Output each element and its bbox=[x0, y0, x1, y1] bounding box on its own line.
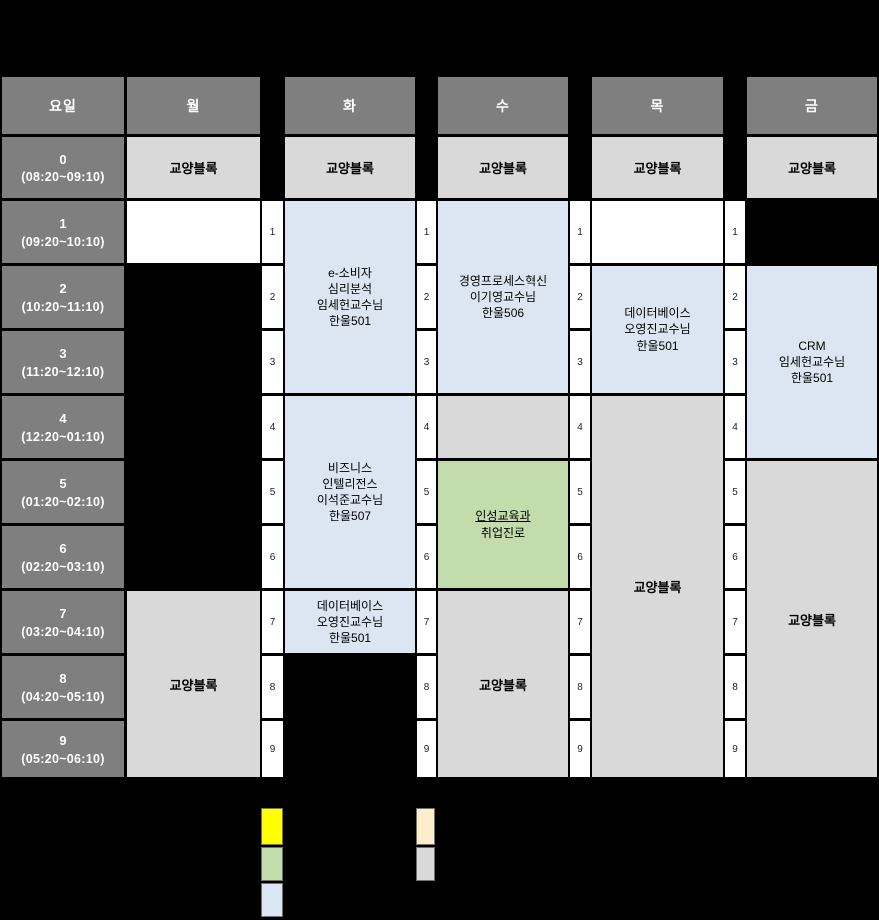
period-number: 3 bbox=[262, 331, 283, 393]
time-slot-range: (11:20~12:10) bbox=[22, 364, 105, 380]
liberal-block-cell-wed-p7-9: 교양블록 bbox=[438, 591, 568, 777]
legend-swatch-cream bbox=[416, 808, 435, 845]
class-cell-tue-p7: 데이터베이스 오영진교수님 한울501 bbox=[285, 591, 415, 653]
period-number: 2 bbox=[417, 266, 436, 328]
time-slot-0: 0 (08:20~09:10) bbox=[2, 137, 124, 198]
class-title: 데이터베이스 오영진교수님 한울501 bbox=[624, 305, 690, 354]
period-number: 7 bbox=[417, 591, 436, 653]
liberal-block-cell-wed-p0: 교양블록 bbox=[438, 137, 568, 198]
period-number-column-3: 123456789 bbox=[570, 0, 590, 920]
time-slot-period: 9 bbox=[59, 731, 66, 751]
time-slot-range: (01:20~02:10) bbox=[21, 494, 104, 510]
time-slot-1: 1 (09:20~10:10) bbox=[2, 201, 124, 263]
time-slot-5: 5 (01:20~02:10) bbox=[2, 461, 124, 523]
period-number: 5 bbox=[725, 461, 745, 523]
liberal-block-cell-thu-p4-9: 교양블록 bbox=[592, 396, 723, 777]
time-slot-range: (02:20~03:10) bbox=[21, 559, 104, 575]
period-number-column-4: 123456789 bbox=[725, 0, 745, 920]
period-number: 9 bbox=[570, 721, 590, 777]
class-subtitle: 취업진로 bbox=[481, 525, 525, 541]
period-number: 2 bbox=[725, 266, 745, 328]
time-slot-period: 1 bbox=[59, 214, 66, 234]
period-number: 8 bbox=[417, 656, 436, 718]
legend-swatch-light-blue bbox=[261, 883, 283, 917]
time-slot-range: (04:20~05:10) bbox=[21, 689, 104, 705]
period-number: 1 bbox=[570, 201, 590, 263]
time-slot-range: (08:20~09:10) bbox=[21, 169, 104, 185]
time-slot-6: 6 (02:20~03:10) bbox=[2, 526, 124, 588]
class-title: 데이터베이스 오영진교수님 한울501 bbox=[317, 598, 383, 647]
class-title: 인성교육과 bbox=[475, 508, 530, 524]
period-number: 2 bbox=[262, 266, 283, 328]
legend-swatch-gray bbox=[416, 847, 435, 881]
empty-cell-mon-p1 bbox=[127, 201, 260, 263]
time-slot-range: (09:20~10:10) bbox=[21, 234, 104, 250]
period-number: 9 bbox=[262, 721, 283, 777]
day-header-tue: 화 bbox=[285, 77, 415, 134]
period-number: 4 bbox=[725, 396, 745, 458]
period-number: 3 bbox=[417, 331, 436, 393]
class-cell-tue-p4-6: 비즈니스 인텔리전스 이석준교수님 한울507 bbox=[285, 396, 415, 588]
day-header-wed: 수 bbox=[438, 77, 568, 134]
day-header-thu: 목 bbox=[592, 77, 723, 134]
period-number: 4 bbox=[262, 396, 283, 458]
time-slot-period: 4 bbox=[59, 409, 66, 429]
period-number: 2 bbox=[570, 266, 590, 328]
liberal-block-cell-thu-p0: 교양블록 bbox=[592, 137, 723, 198]
liberal-block-cell-mon-p0: 교양블록 bbox=[127, 137, 260, 198]
class-cell-wed-p1-3: 경영프로세스혁신 이기영교수님 한울506 bbox=[438, 201, 568, 393]
period-number: 9 bbox=[417, 721, 436, 777]
time-slot-range: (03:20~04:10) bbox=[21, 624, 104, 640]
period-number: 5 bbox=[570, 461, 590, 523]
day-header-mon: 월 bbox=[127, 77, 260, 134]
period-number: 4 bbox=[570, 396, 590, 458]
time-slot-range: (10:20~11:10) bbox=[22, 299, 105, 315]
time-slot-7: 7 (03:20~04:10) bbox=[2, 591, 124, 653]
period-number: 8 bbox=[725, 656, 745, 718]
period-number: 1 bbox=[262, 201, 283, 263]
time-slot-period: 5 bbox=[59, 474, 66, 494]
time-slot-2: 2 (10:20~11:10) bbox=[2, 266, 124, 328]
period-number: 6 bbox=[262, 526, 283, 588]
timetable: 요일 월 화 수 목 금 0 (08:20~09:10) 1 (09:20~10… bbox=[0, 0, 879, 920]
time-slot-3: 3 (11:20~12:10) bbox=[2, 331, 124, 393]
time-slot-period: 7 bbox=[59, 604, 66, 624]
liberal-block-cell-fri-p0: 교양블록 bbox=[747, 137, 877, 198]
period-number: 7 bbox=[725, 591, 745, 653]
class-title: 비즈니스 인텔리전스 이석준교수님 한울507 bbox=[317, 460, 383, 525]
period-number: 7 bbox=[570, 591, 590, 653]
time-slot-range: (05:20~06:10) bbox=[21, 751, 104, 767]
period-number: 3 bbox=[725, 331, 745, 393]
liberal-block-cell-tue-p0: 교양블록 bbox=[285, 137, 415, 198]
period-number: 5 bbox=[417, 461, 436, 523]
period-number-column-1: 123456789 bbox=[262, 0, 283, 920]
liberal-block-cell-fri-p5-9: 교양블록 bbox=[747, 461, 877, 777]
period-number: 9 bbox=[725, 721, 745, 777]
period-number: 5 bbox=[262, 461, 283, 523]
class-cell-thu-p2-3: 데이터베이스 오영진교수님 한울501 bbox=[592, 266, 723, 393]
liberal-block-cell-mon-p7-9: 교양블록 bbox=[127, 591, 260, 777]
class-cell-fri-p2-4: CRM 임세헌교수님 한울501 bbox=[747, 266, 877, 458]
time-slot-9: 9 (05:20~06:10) bbox=[2, 721, 124, 777]
corner-header: 요일 bbox=[2, 77, 124, 134]
class-title: e-소비자 심리분석 임세헌교수님 한울501 bbox=[317, 265, 383, 330]
class-title: CRM 임세헌교수님 한울501 bbox=[779, 338, 845, 387]
period-number: 3 bbox=[570, 331, 590, 393]
period-number: 8 bbox=[262, 656, 283, 718]
time-slot-period: 3 bbox=[59, 344, 66, 364]
period-number: 6 bbox=[570, 526, 590, 588]
time-slot-8: 8 (04:20~05:10) bbox=[2, 656, 124, 718]
period-number: 1 bbox=[725, 201, 745, 263]
class-cell-tue-p1-3: e-소비자 심리분석 임세헌교수님 한울501 bbox=[285, 201, 415, 393]
period-number-column-2: 123456789 bbox=[417, 0, 436, 920]
time-slot-period: 6 bbox=[59, 539, 66, 559]
period-number: 7 bbox=[262, 591, 283, 653]
empty-cell-wed-p4 bbox=[438, 396, 568, 458]
empty-cell-thu-p1 bbox=[592, 201, 723, 263]
period-number: 6 bbox=[725, 526, 745, 588]
time-slot-period: 0 bbox=[59, 150, 66, 170]
class-cell-wed-p5-6: 인성교육과 취업진로 bbox=[438, 461, 568, 588]
period-number: 8 bbox=[570, 656, 590, 718]
period-number: 6 bbox=[417, 526, 436, 588]
class-title: 경영프로세스혁신 이기영교수님 한울506 bbox=[459, 273, 547, 322]
period-number: 1 bbox=[417, 201, 436, 263]
time-slot-period: 2 bbox=[59, 279, 66, 299]
time-slot-4: 4 (12:20~01:10) bbox=[2, 396, 124, 458]
legend-swatch-green bbox=[261, 847, 283, 881]
time-slot-range: (12:20~01:10) bbox=[21, 429, 104, 445]
day-header-fri: 금 bbox=[747, 77, 877, 134]
legend-swatch-yellow bbox=[261, 808, 283, 845]
time-slot-period: 8 bbox=[59, 669, 66, 689]
period-number: 4 bbox=[417, 396, 436, 458]
